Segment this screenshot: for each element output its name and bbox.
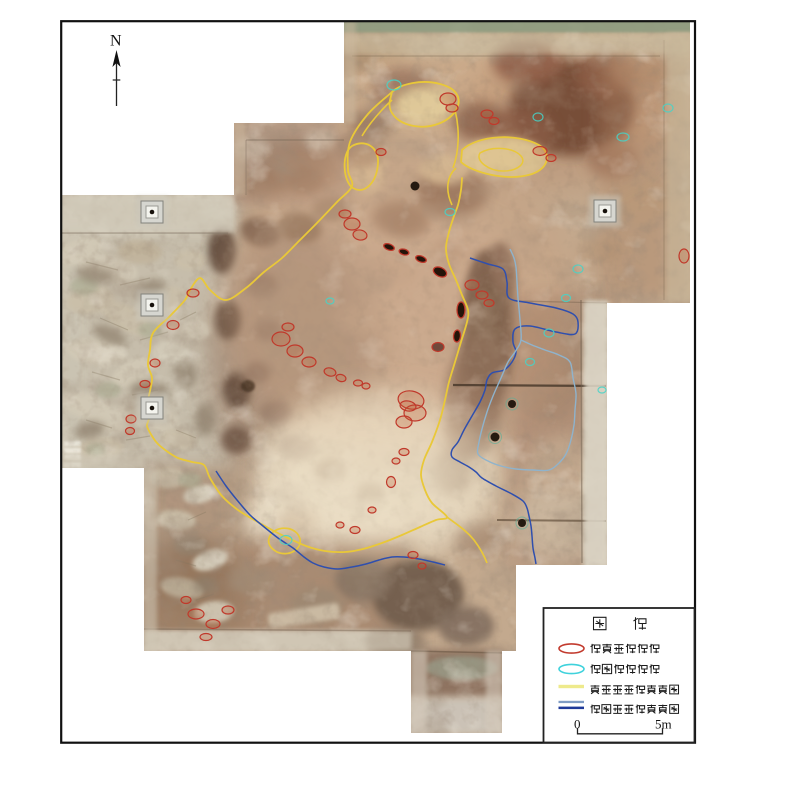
svg-text:N: N	[110, 33, 122, 50]
svg-text:5m: 5m	[655, 717, 672, 732]
